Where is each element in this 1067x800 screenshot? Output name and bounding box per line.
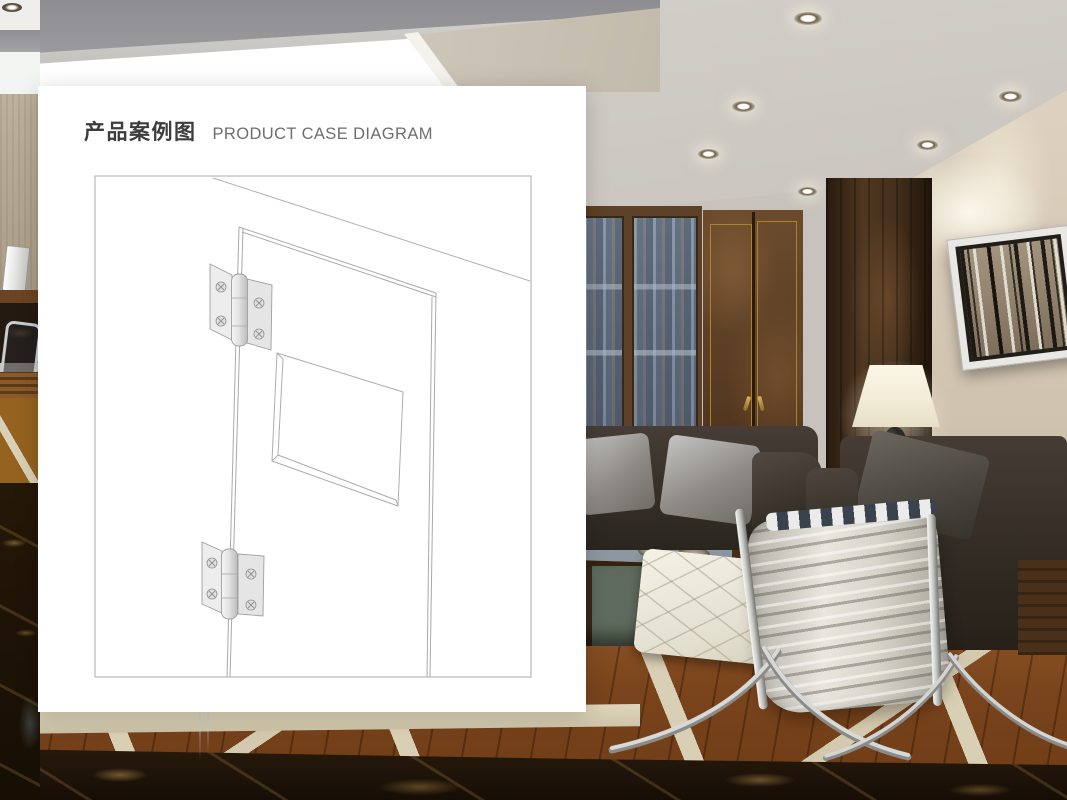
hinge-top [210,264,272,350]
diagram-frame [95,176,531,677]
desk-top [0,290,40,303]
left-background-sliver [0,0,40,800]
hinge-bottom [202,542,264,619]
cove-light [0,52,40,94]
wall-edge-line [213,178,530,281]
product-card: 产品案例图 PRODUCT CASE DIAGRAM [38,86,586,712]
door-hinge-diagram [38,86,586,712]
desktop-monitor [2,245,31,293]
window-inset [272,353,403,506]
soffit-shadow-band [0,30,40,52]
recessed-light [2,3,22,12]
dark-marble-floor [0,483,40,800]
product-showcase-image: 产品案例图 PRODUCT CASE DIAGRAM [0,0,1067,800]
wood-slat-bench [0,372,40,398]
wood-floor [0,398,40,483]
